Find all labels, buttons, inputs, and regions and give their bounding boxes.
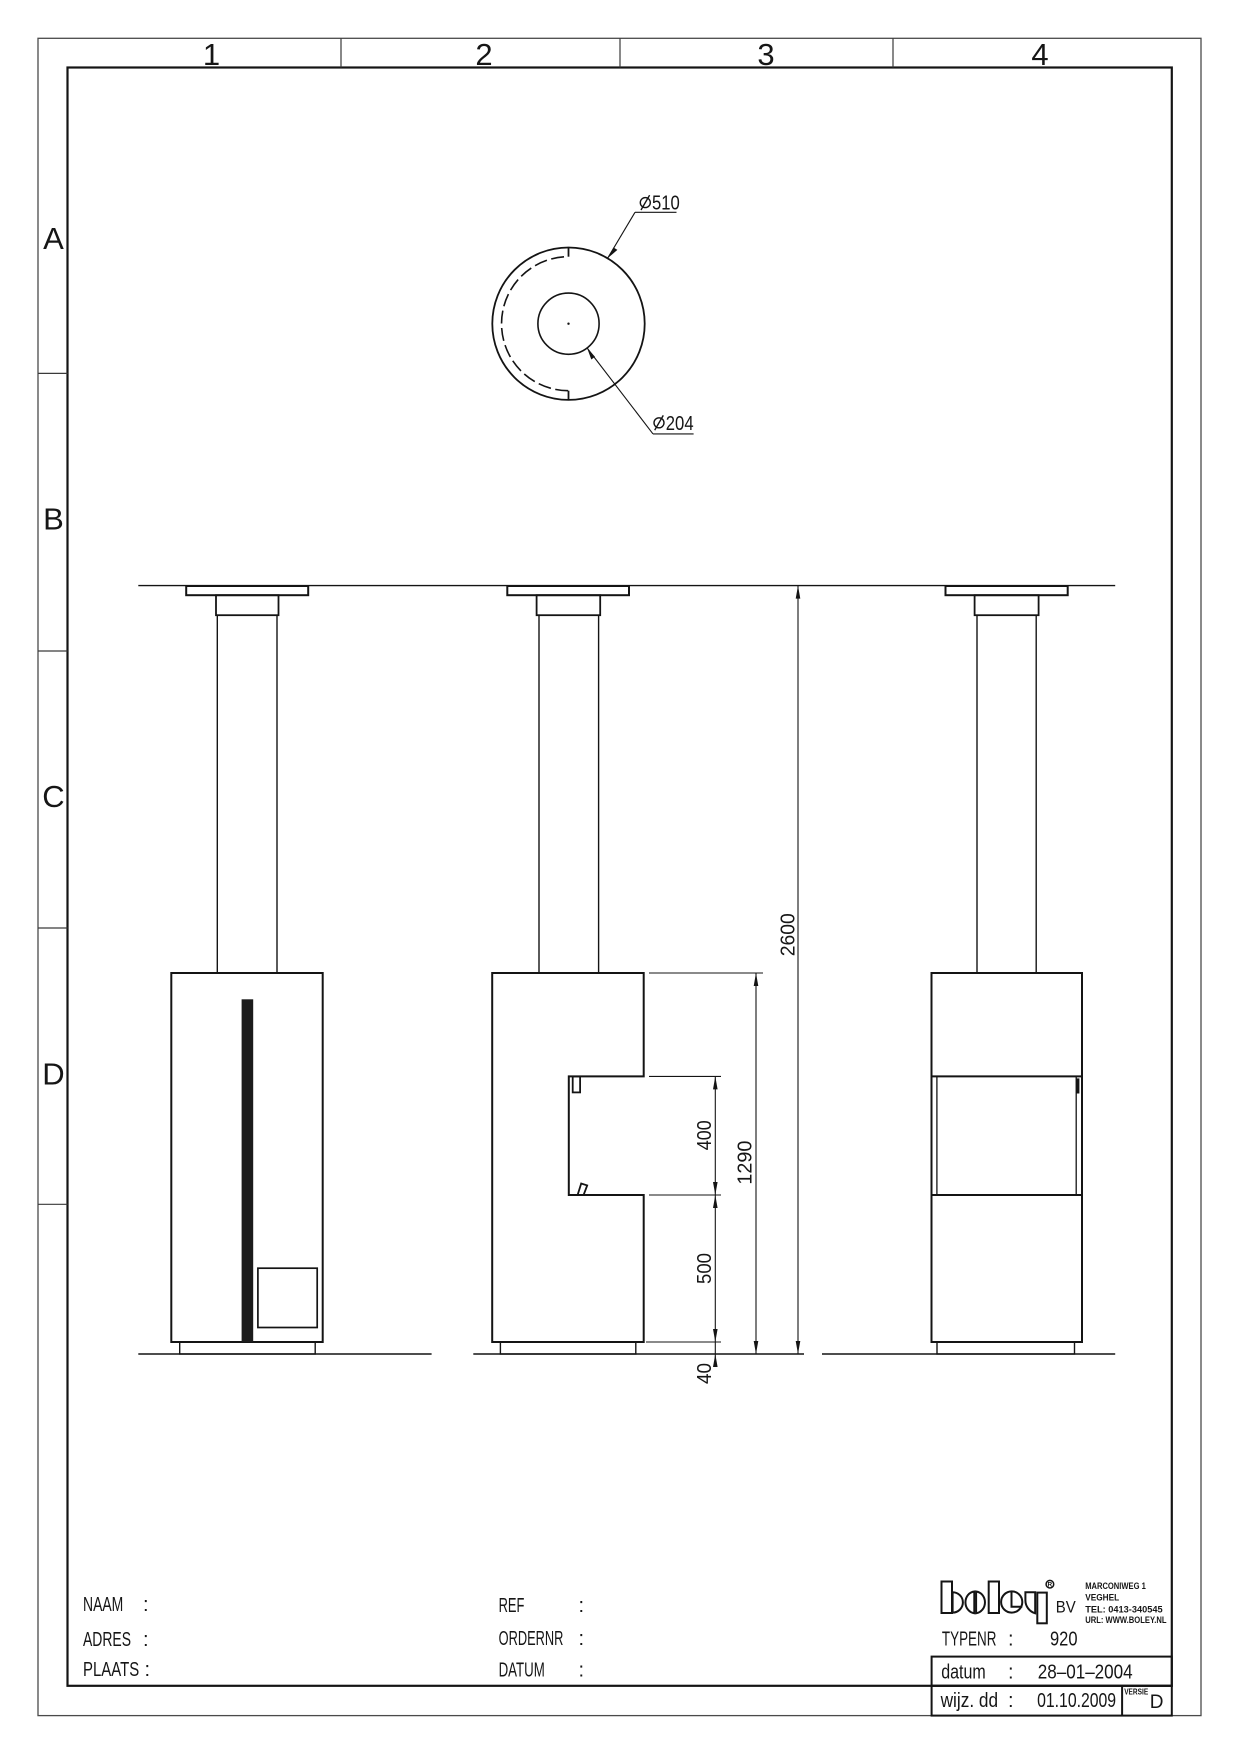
svg-text:URL: WWW.BOLEY.NL: URL: WWW.BOLEY.NL [1085, 1615, 1166, 1626]
svg-text:ADRES: ADRES [83, 1629, 131, 1651]
svg-text::: : [1008, 1690, 1014, 1712]
svg-text:wijz. dd: wijz. dd [940, 1690, 998, 1712]
svg-text:2: 2 [475, 37, 492, 72]
svg-text:40: 40 [693, 1363, 716, 1384]
svg-text:D: D [1150, 1692, 1164, 1713]
svg-text:TEL: 0413-340545: TEL: 0413-340545 [1085, 1604, 1163, 1615]
svg-text:204: 204 [666, 412, 694, 435]
svg-text:500: 500 [693, 1253, 716, 1284]
svg-text::: : [143, 1594, 149, 1616]
svg-text:REF: REF [499, 1595, 525, 1617]
svg-text:01.10.2009: 01.10.2009 [1037, 1690, 1116, 1712]
svg-text::: : [579, 1660, 585, 1682]
svg-text:BV: BV [1056, 1599, 1076, 1617]
svg-text:PLAATS: PLAATS [83, 1659, 139, 1681]
svg-text:920: 920 [1050, 1628, 1078, 1650]
svg-text:28–01–2004: 28–01–2004 [1038, 1662, 1133, 1684]
svg-text::: : [579, 1628, 585, 1650]
svg-text::: : [1008, 1662, 1014, 1684]
svg-text::: : [145, 1659, 151, 1681]
svg-text:B: B [43, 501, 64, 536]
svg-text:510: 510 [652, 192, 680, 215]
svg-text:VERSIE: VERSIE [1124, 1686, 1148, 1696]
svg-text::: : [579, 1595, 585, 1617]
svg-text:C: C [42, 779, 64, 814]
svg-text::: : [143, 1629, 149, 1651]
svg-text:1: 1 [203, 37, 220, 72]
svg-text:datum: datum [941, 1662, 986, 1684]
svg-text:NAAM: NAAM [83, 1594, 123, 1616]
svg-text:2600: 2600 [777, 913, 800, 956]
svg-text::: : [1008, 1628, 1014, 1650]
svg-text:4: 4 [1031, 37, 1048, 72]
svg-text:400: 400 [693, 1120, 716, 1150]
svg-text:R: R [1048, 1582, 1053, 1589]
svg-text:DATUM: DATUM [499, 1660, 545, 1682]
svg-text:3: 3 [757, 37, 774, 72]
svg-text:D: D [42, 1056, 64, 1091]
svg-text:VEGHEL: VEGHEL [1085, 1593, 1119, 1604]
svg-text:ORDERNR: ORDERNR [499, 1628, 564, 1650]
svg-text:TYPENR: TYPENR [942, 1628, 997, 1650]
svg-text:A: A [43, 221, 64, 256]
svg-text:MARCONIWEG 1: MARCONIWEG 1 [1085, 1581, 1146, 1592]
svg-text:1290: 1290 [734, 1141, 757, 1185]
